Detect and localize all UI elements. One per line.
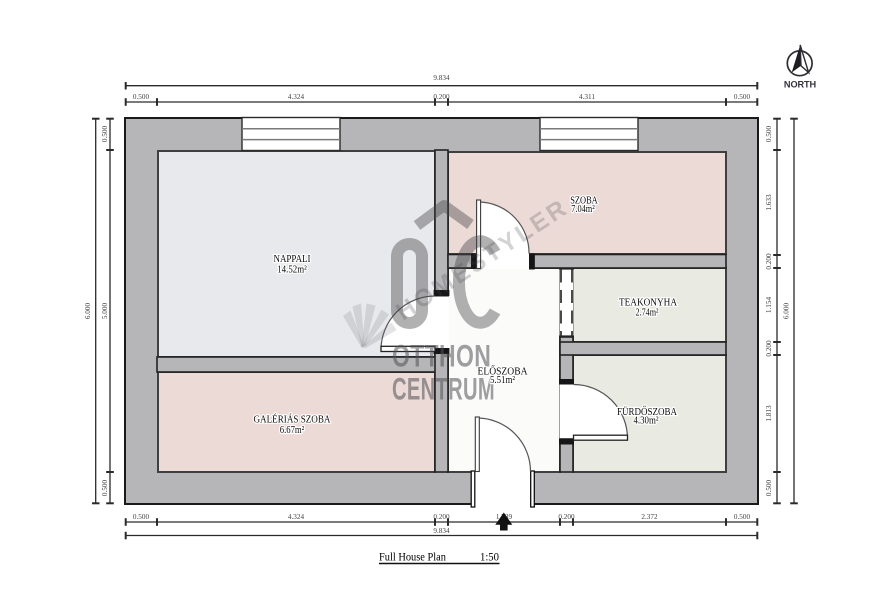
svg-text:0.500: 0.500	[764, 480, 773, 497]
svg-text:1.154: 1.154	[764, 297, 773, 314]
svg-text:NAPPALI: NAPPALI	[274, 254, 311, 265]
svg-text:0.500: 0.500	[734, 92, 751, 101]
svg-text:4.324: 4.324	[288, 512, 305, 521]
svg-text:0.200: 0.200	[433, 512, 450, 521]
svg-text:Full House Plan: Full House Plan	[379, 552, 446, 564]
svg-text:4.311: 4.311	[579, 92, 596, 101]
svg-text:4.30m²: 4.30m²	[634, 416, 659, 427]
svg-text:0.200: 0.200	[558, 512, 575, 521]
svg-text:2.74m²: 2.74m²	[636, 308, 659, 319]
svg-text:1.813: 1.813	[764, 405, 773, 422]
svg-text:5.000: 5.000	[100, 303, 109, 320]
svg-text:0.500: 0.500	[100, 126, 109, 143]
svg-text:7.04m²: 7.04m²	[571, 204, 595, 215]
svg-text:0.500: 0.500	[734, 512, 751, 521]
svg-text:9.834: 9.834	[433, 73, 450, 82]
svg-text:14.52m²: 14.52m²	[277, 265, 307, 276]
svg-text:0.200: 0.200	[433, 92, 450, 101]
svg-text:6.67m²: 6.67m²	[280, 425, 305, 436]
svg-text:1.633: 1.633	[764, 194, 773, 211]
svg-text:9.834: 9.834	[433, 526, 450, 535]
svg-text:0.500: 0.500	[133, 92, 150, 101]
svg-text:5.51m²: 5.51m²	[490, 375, 515, 386]
svg-text:6.000: 6.000	[83, 303, 92, 320]
svg-text:OTTHON: OTTHON	[392, 338, 491, 373]
svg-text:0.500: 0.500	[100, 480, 109, 497]
svg-text:GALÉRIÁS SZOBA: GALÉRIÁS SZOBA	[254, 414, 331, 426]
svg-text:0.500: 0.500	[133, 512, 150, 521]
svg-text:4.324: 4.324	[288, 92, 305, 101]
svg-text:0.500: 0.500	[764, 126, 773, 143]
svg-text:0.200: 0.200	[764, 340, 773, 357]
svg-text:2.372: 2.372	[641, 512, 658, 521]
svg-text:1:50: 1:50	[480, 552, 499, 564]
svg-text:NORTH: NORTH	[784, 80, 817, 90]
svg-text:6.000: 6.000	[782, 303, 791, 320]
svg-text:0.200: 0.200	[764, 253, 773, 270]
